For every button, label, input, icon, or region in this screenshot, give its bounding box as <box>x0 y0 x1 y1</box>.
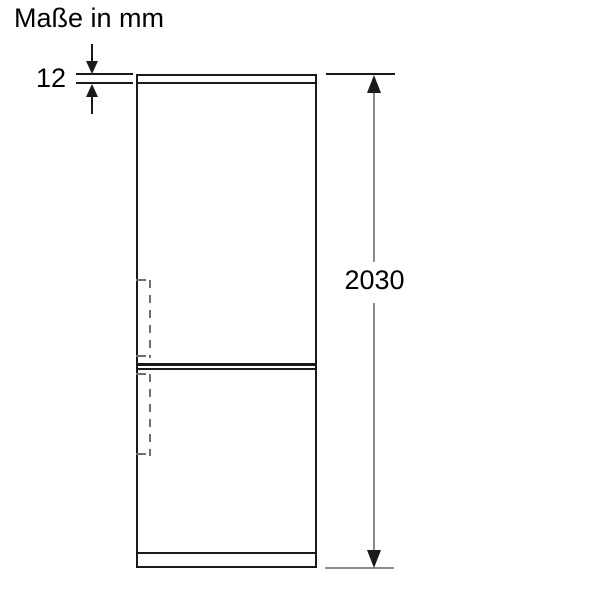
arrow-down-icon <box>86 61 98 74</box>
height-dimension-line-lower <box>373 303 375 553</box>
arrow-down-icon <box>367 550 381 568</box>
upper-recess-bottom-tick <box>136 355 146 357</box>
upper-recess-top-tick <box>136 279 146 281</box>
upper-recess-dashed-line <box>149 280 151 358</box>
plinth-line <box>138 552 315 554</box>
thickness-extension-line-bottom <box>76 82 133 84</box>
units-caption: Maße in mm <box>14 4 164 34</box>
lower-recess-dashed-line <box>149 374 151 456</box>
lower-recess-bottom-tick <box>136 453 146 455</box>
height-extension-line-bottom <box>325 567 394 569</box>
fridge-outline <box>136 74 317 568</box>
thickness-extension-line-top <box>76 73 133 75</box>
arrow-up-icon <box>367 75 381 93</box>
lower-recess-top-tick <box>136 373 146 375</box>
arrow-up-icon <box>86 84 98 97</box>
lower-door-top-edge <box>138 368 315 371</box>
dimension-diagram-canvas: Maße in mm 12 2030 <box>0 0 600 600</box>
thickness-arrow-shaft-top <box>91 44 93 61</box>
fridge-top-panel-line <box>138 82 315 84</box>
height-extension-line-top <box>326 73 395 75</box>
thickness-arrow-shaft-bottom <box>91 97 93 114</box>
height-dimension-line-upper <box>373 92 375 262</box>
thickness-dimension-label: 12 <box>22 64 66 94</box>
upper-door-bottom-edge <box>138 363 315 366</box>
height-dimension-label: 2030 <box>334 266 415 296</box>
